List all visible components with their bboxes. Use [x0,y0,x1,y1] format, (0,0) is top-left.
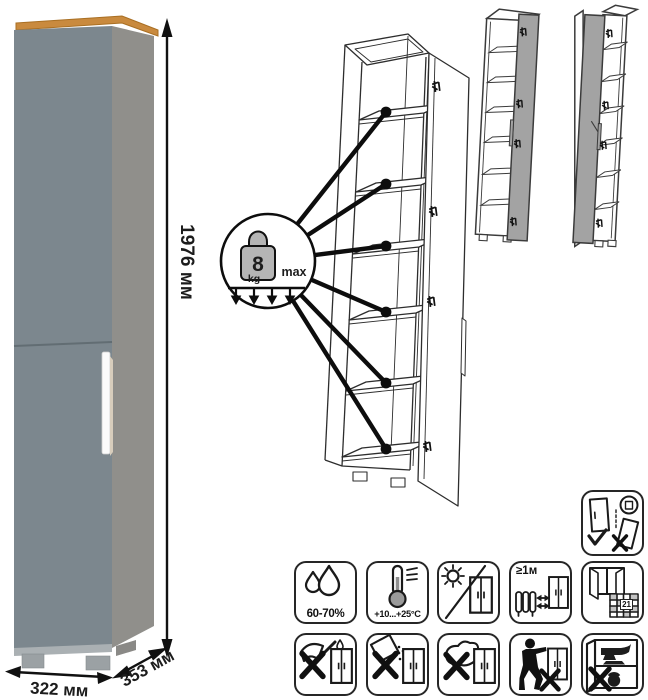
no-direct-sunlight-icon [437,561,500,624]
weight-unit: kg [248,273,260,285]
temperature-icon: +10...+25°C [366,561,429,624]
no-dragging-icon [509,633,572,696]
wardrobe-icon [549,577,568,608]
double-arrow-icon [537,596,549,609]
cabinet-side-panel [112,26,154,648]
humidity-icon: 60-70% [294,561,357,624]
shelf-load-diagram: 8 kg max [205,8,480,523]
ventilation-acclimatization-icon: 21 [581,561,644,624]
water-drop-icon [306,572,320,592]
temperature-label: +10...+25°C [368,609,427,619]
wall-anchoring-icon [581,490,644,556]
no-sharp-objects-icon [294,633,357,696]
person-icon [519,639,547,691]
max-load-callout: 8 kg max [221,214,315,308]
wardrobe-icon [474,649,495,683]
variant-door-hinged-left [563,3,638,249]
open-door [418,53,469,506]
shelf-pointer-dots [381,107,392,455]
sun-icon [448,571,459,582]
height-dimension: 1976 мм [162,18,197,658]
no-wet-cleaning-icon [437,633,500,696]
kettlebell-icon [608,674,620,687]
magnifier-icon [621,497,638,514]
wardrobe-icon [331,649,352,683]
water-drop-icon [319,566,339,595]
calendar-day-label: 21 [620,599,633,610]
cabinet-photo: 1976 мм 322 мм 353 мм [0,0,210,700]
distance-label: ≥1м [516,565,537,577]
width-dimension: 322 мм [5,666,113,700]
no-abrasive-powders-icon [366,633,429,696]
door-variants [473,2,648,254]
product-sheet: 1976 мм 322 мм 353 мм [0,0,648,700]
open-cabinet-drawing [325,34,469,506]
keep-distance-from-heat-icon: ≥1м [509,561,572,624]
wardrobe-icon [403,649,424,683]
no-heavy-items-icon [581,633,644,696]
handle-recess [110,356,113,456]
cabinet-foot [86,656,110,670]
humidity-label: 60-70% [296,608,355,620]
variant-door-hinged-right [475,8,539,242]
radiator-icon [516,592,536,616]
door-handle [102,352,110,454]
height-label: 1976 мм [176,224,197,300]
weight-qualifier: max [281,265,306,279]
width-label: 322 мм [30,678,89,700]
cabinet-front-door [14,26,112,650]
cabinet-foot [22,654,44,668]
